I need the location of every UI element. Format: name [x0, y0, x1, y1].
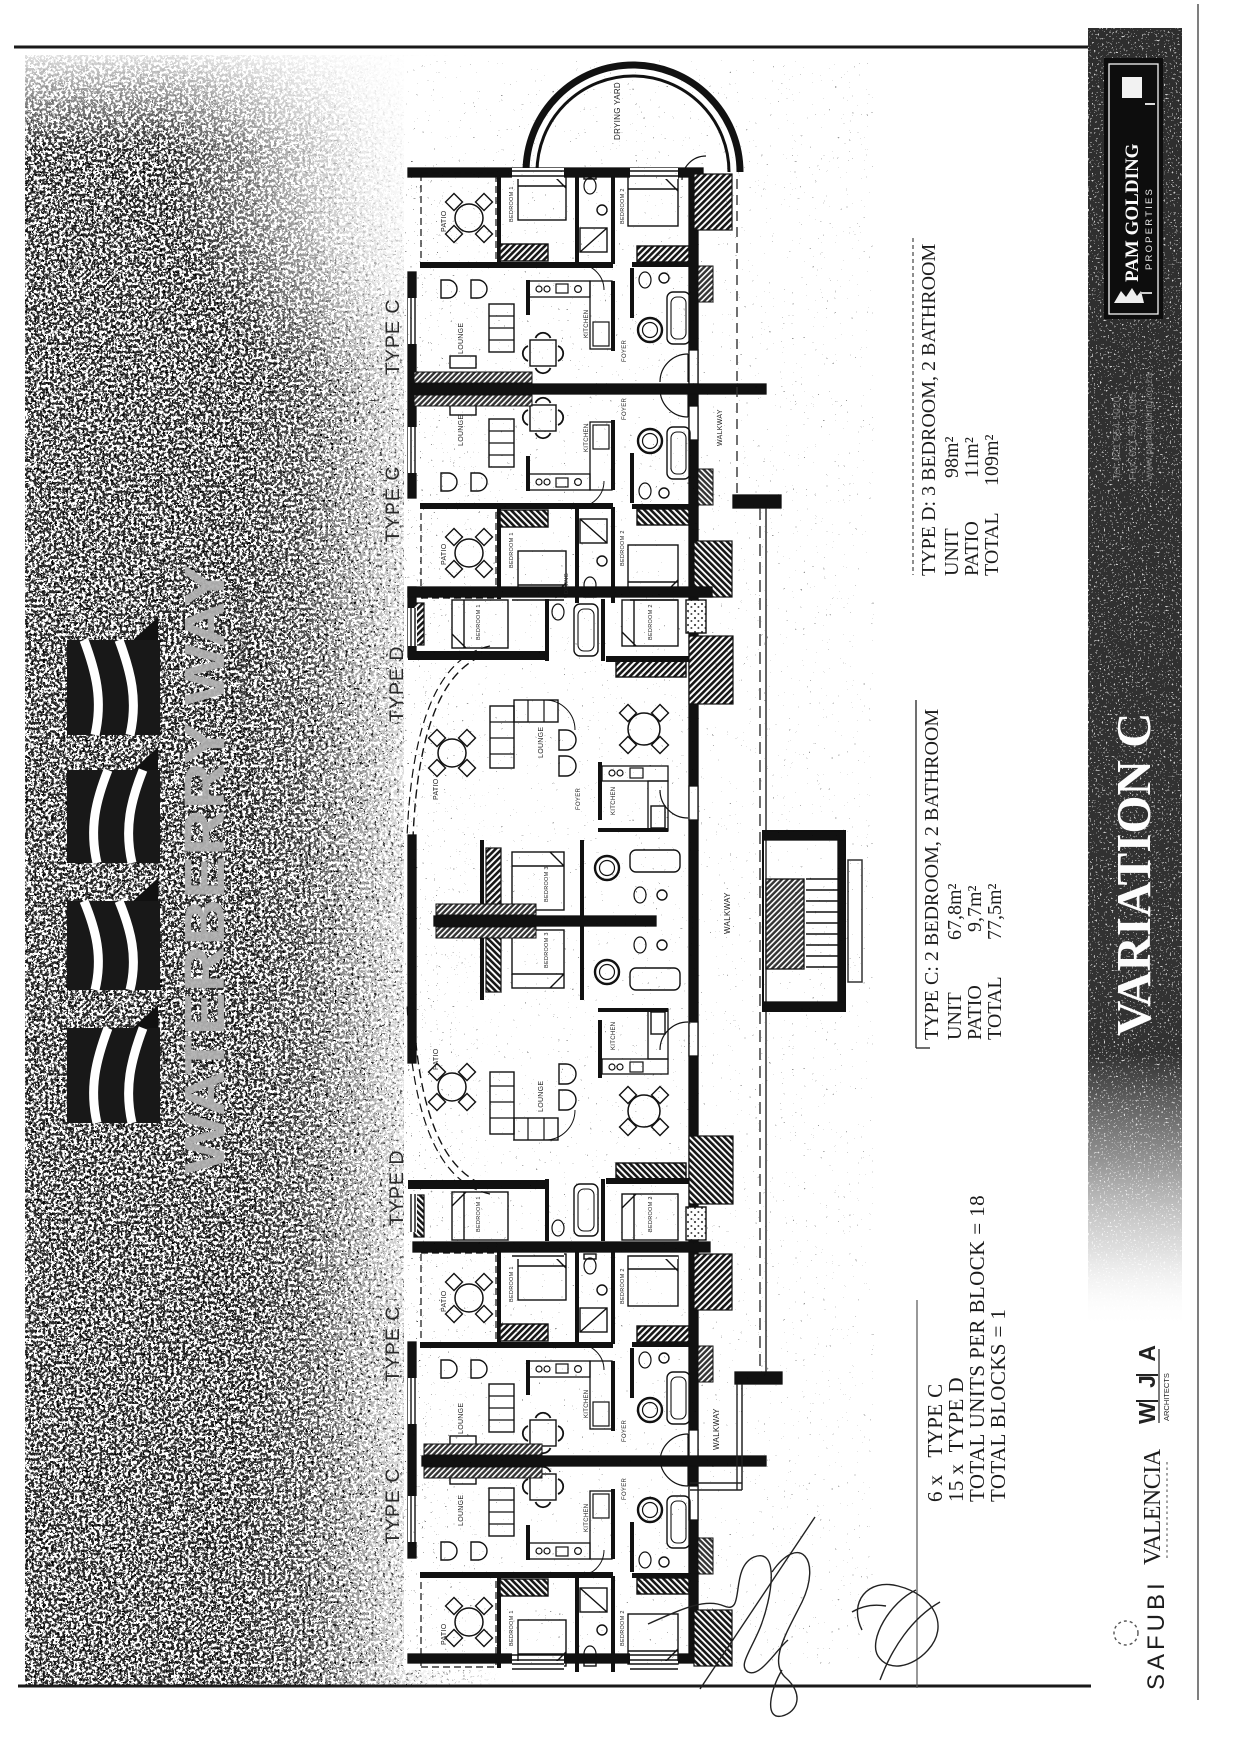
- svg-text:TYPE C: TYPE C: [382, 466, 404, 542]
- svg-text:98m²: 98m²: [941, 436, 963, 478]
- svg-text:Tel: 021 554 1020: Tel: 021 554 1020: [1111, 396, 1123, 480]
- svg-text:VARIATION C: VARIATION C: [1106, 712, 1161, 1036]
- svg-text:WATERBERRY WAY: WATERBERRY WAY: [173, 564, 237, 1174]
- svg-text:77,5m²: 77,5m²: [984, 883, 1006, 940]
- svg-text:9,7m²: 9,7m²: [964, 885, 986, 932]
- svg-text:Fax: 021 554 1025: Fax: 021 554 1025: [1127, 392, 1139, 480]
- svg-text:TOTAL: TOTAL: [981, 512, 1003, 576]
- svg-text:SAFUBI: SAFUBI: [1143, 1579, 1170, 1690]
- svg-text:TOTAL BLOCKS = 1: TOTAL BLOCKS = 1: [986, 1309, 1010, 1502]
- svg-text:TYPE C: 2 BEDROOM, 2 BATHROOM: TYPE C: 2 BEDROOM, 2 BATHROOM: [921, 709, 943, 1040]
- svg-text:TOTAL: TOTAL: [984, 976, 1006, 1040]
- svg-text:TYPE D: 3 BEDROOM, 2 BATHROOM: TYPE D: 3 BEDROOM, 2 BATHROOM: [918, 244, 940, 576]
- svg-text:ARCHITECTS: ARCHITECTS: [1162, 1373, 1171, 1421]
- svg-text:TYPE C: TYPE C: [382, 1468, 404, 1544]
- svg-text:11m²: 11m²: [961, 437, 983, 478]
- svg-text:PATIO: PATIO: [964, 985, 986, 1040]
- svg-text:PATIO: PATIO: [961, 521, 983, 576]
- svg-text:UNIT: UNIT: [944, 992, 966, 1040]
- svg-text:TYPE C: TYPE C: [382, 1306, 404, 1382]
- svg-text:PROPERTIES: PROPERTIES: [1144, 187, 1155, 270]
- svg-text:VALENCIA: VALENCIA: [1140, 1448, 1166, 1565]
- svg-text:TYPE C: TYPE C: [382, 299, 404, 375]
- svg-text:109m²: 109m²: [981, 434, 1003, 486]
- svg-text:PAM GOLDING: PAM GOLDING: [1122, 143, 1143, 282]
- svg-text:www.pamgolding.co.za: www.pamgolding.co.za: [1143, 372, 1155, 481]
- svg-text:67,8m²: 67,8m²: [944, 883, 966, 940]
- svg-text:W J A: W J A: [1134, 1341, 1160, 1424]
- svg-text:exclusive lifestyle quality: exclusive lifestyle quality: [235, 596, 249, 722]
- svg-text:UNIT: UNIT: [941, 528, 963, 576]
